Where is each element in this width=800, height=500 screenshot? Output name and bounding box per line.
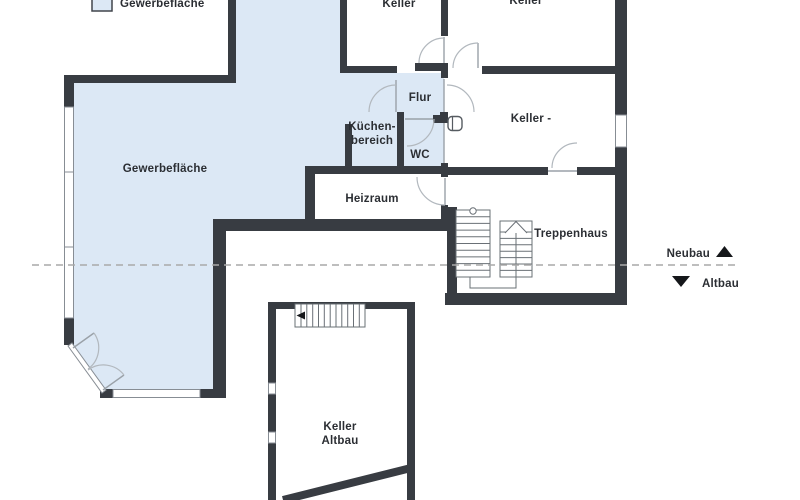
window-bottom xyxy=(113,390,200,398)
room-keller-top-left-floor xyxy=(340,0,448,73)
window-left xyxy=(65,107,74,318)
altbau-left-gap-2 xyxy=(269,432,276,443)
label-keller-top-left: Keller xyxy=(382,0,415,10)
label-treppenhaus: Treppenhaus xyxy=(534,228,608,240)
label-keller-mitte: Keller - xyxy=(511,113,552,125)
label-neubau: Neubau xyxy=(667,248,710,260)
stairs-treppenhaus xyxy=(456,208,532,288)
stair-start-marker xyxy=(470,208,476,214)
sink-fixture xyxy=(448,117,462,131)
legend: Gewerbefläche xyxy=(92,0,204,11)
label-wc: WC xyxy=(410,149,430,161)
floorplan-svg: Gewerbefläche Gewerbefläche Keller Kelle… xyxy=(0,0,800,500)
down-triangle-icon xyxy=(672,276,690,287)
label-altbau: Altbau xyxy=(702,278,739,290)
altbau-left-gap-1 xyxy=(269,383,276,394)
legend-label: Gewerbefläche xyxy=(120,0,204,10)
label-kuechenbereich-2: bereich xyxy=(351,135,393,147)
building-markers: Neubau Altbau xyxy=(667,246,739,290)
window-right xyxy=(616,115,627,147)
up-triangle-icon xyxy=(716,246,733,257)
stairs-altbau xyxy=(295,304,365,327)
label-heizraum: Heizraum xyxy=(345,193,398,205)
legend-swatch xyxy=(92,0,112,11)
label-gewerbeflaeche: Gewerbefläche xyxy=(123,163,207,175)
label-keller-altbau-1: Keller xyxy=(323,421,356,433)
label-kuechenbereich-1: Küchen- xyxy=(348,121,395,133)
altbau-diagonal-wall xyxy=(283,468,411,500)
label-flur: Flur xyxy=(409,92,432,104)
floorplan-canvas: Gewerbefläche Gewerbefläche Keller Kelle… xyxy=(0,0,800,500)
label-keller-top-right: Keller xyxy=(509,0,542,7)
label-keller-altbau-2: Altbau xyxy=(322,435,359,447)
